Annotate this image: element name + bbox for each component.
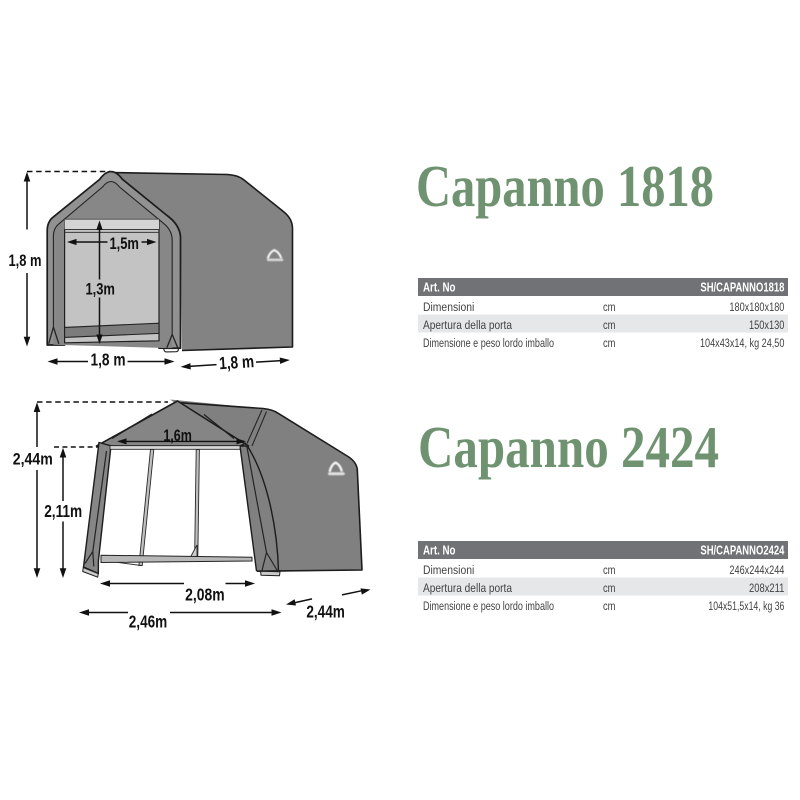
svg-text:2,08m: 2,08m xyxy=(185,585,225,605)
svg-text:Apertura della porta: Apertura della porta xyxy=(423,318,512,332)
svg-text:2,44m: 2,44m xyxy=(13,451,53,469)
svg-text:cm: cm xyxy=(603,300,616,314)
svg-text:Dimensioni: Dimensioni xyxy=(423,563,474,577)
svg-text:1,6m: 1,6m xyxy=(163,426,192,445)
svg-text:2,46m: 2,46m xyxy=(129,611,168,631)
svg-text:Art. No: Art. No xyxy=(423,544,456,558)
svg-text:SH/CAPANNO1818: SH/CAPANNO1818 xyxy=(700,281,784,295)
svg-text:150x130: 150x130 xyxy=(749,318,785,332)
svg-text:2,11m: 2,11m xyxy=(44,501,82,521)
svg-text:1,5m: 1,5m xyxy=(109,234,139,253)
svg-text:Capanno 1818: Capanno 1818 xyxy=(416,153,714,219)
svg-text:Art. No: Art. No xyxy=(423,281,456,295)
svg-text:2,44m: 2,44m xyxy=(306,602,345,622)
svg-text:1,8 m: 1,8 m xyxy=(219,351,255,373)
svg-text:180x180x180: 180x180x180 xyxy=(729,300,784,314)
svg-text:Apertura della porta: Apertura della porta xyxy=(423,581,512,595)
svg-text:1,8 m: 1,8 m xyxy=(9,252,42,270)
svg-text:246x244x244: 246x244x244 xyxy=(729,563,784,577)
svg-text:cm: cm xyxy=(603,336,616,350)
svg-text:1,8 m: 1,8 m xyxy=(91,349,126,369)
svg-text:104x51,5x14, kg 36: 104x51,5x14, kg 36 xyxy=(708,599,784,613)
svg-text:cm: cm xyxy=(603,581,616,595)
svg-text:Dimensioni: Dimensioni xyxy=(423,300,474,314)
svg-text:104x43x14, kg 24,50: 104x43x14, kg 24,50 xyxy=(700,336,785,350)
svg-text:208x211: 208x211 xyxy=(749,581,785,595)
svg-text:cm: cm xyxy=(603,599,616,613)
svg-text:cm: cm xyxy=(603,318,616,332)
svg-text:SH/CAPANNO2424: SH/CAPANNO2424 xyxy=(700,544,784,558)
svg-text:1,3m: 1,3m xyxy=(85,280,115,299)
svg-text:Dimensione e peso lordo imball: Dimensione e peso lordo imballo xyxy=(423,599,554,613)
svg-text:Capanno 2424: Capanno 2424 xyxy=(418,414,719,480)
svg-text:Dimensione e peso lordo imball: Dimensione e peso lordo imballo xyxy=(423,336,554,350)
svg-text:cm: cm xyxy=(603,563,616,577)
